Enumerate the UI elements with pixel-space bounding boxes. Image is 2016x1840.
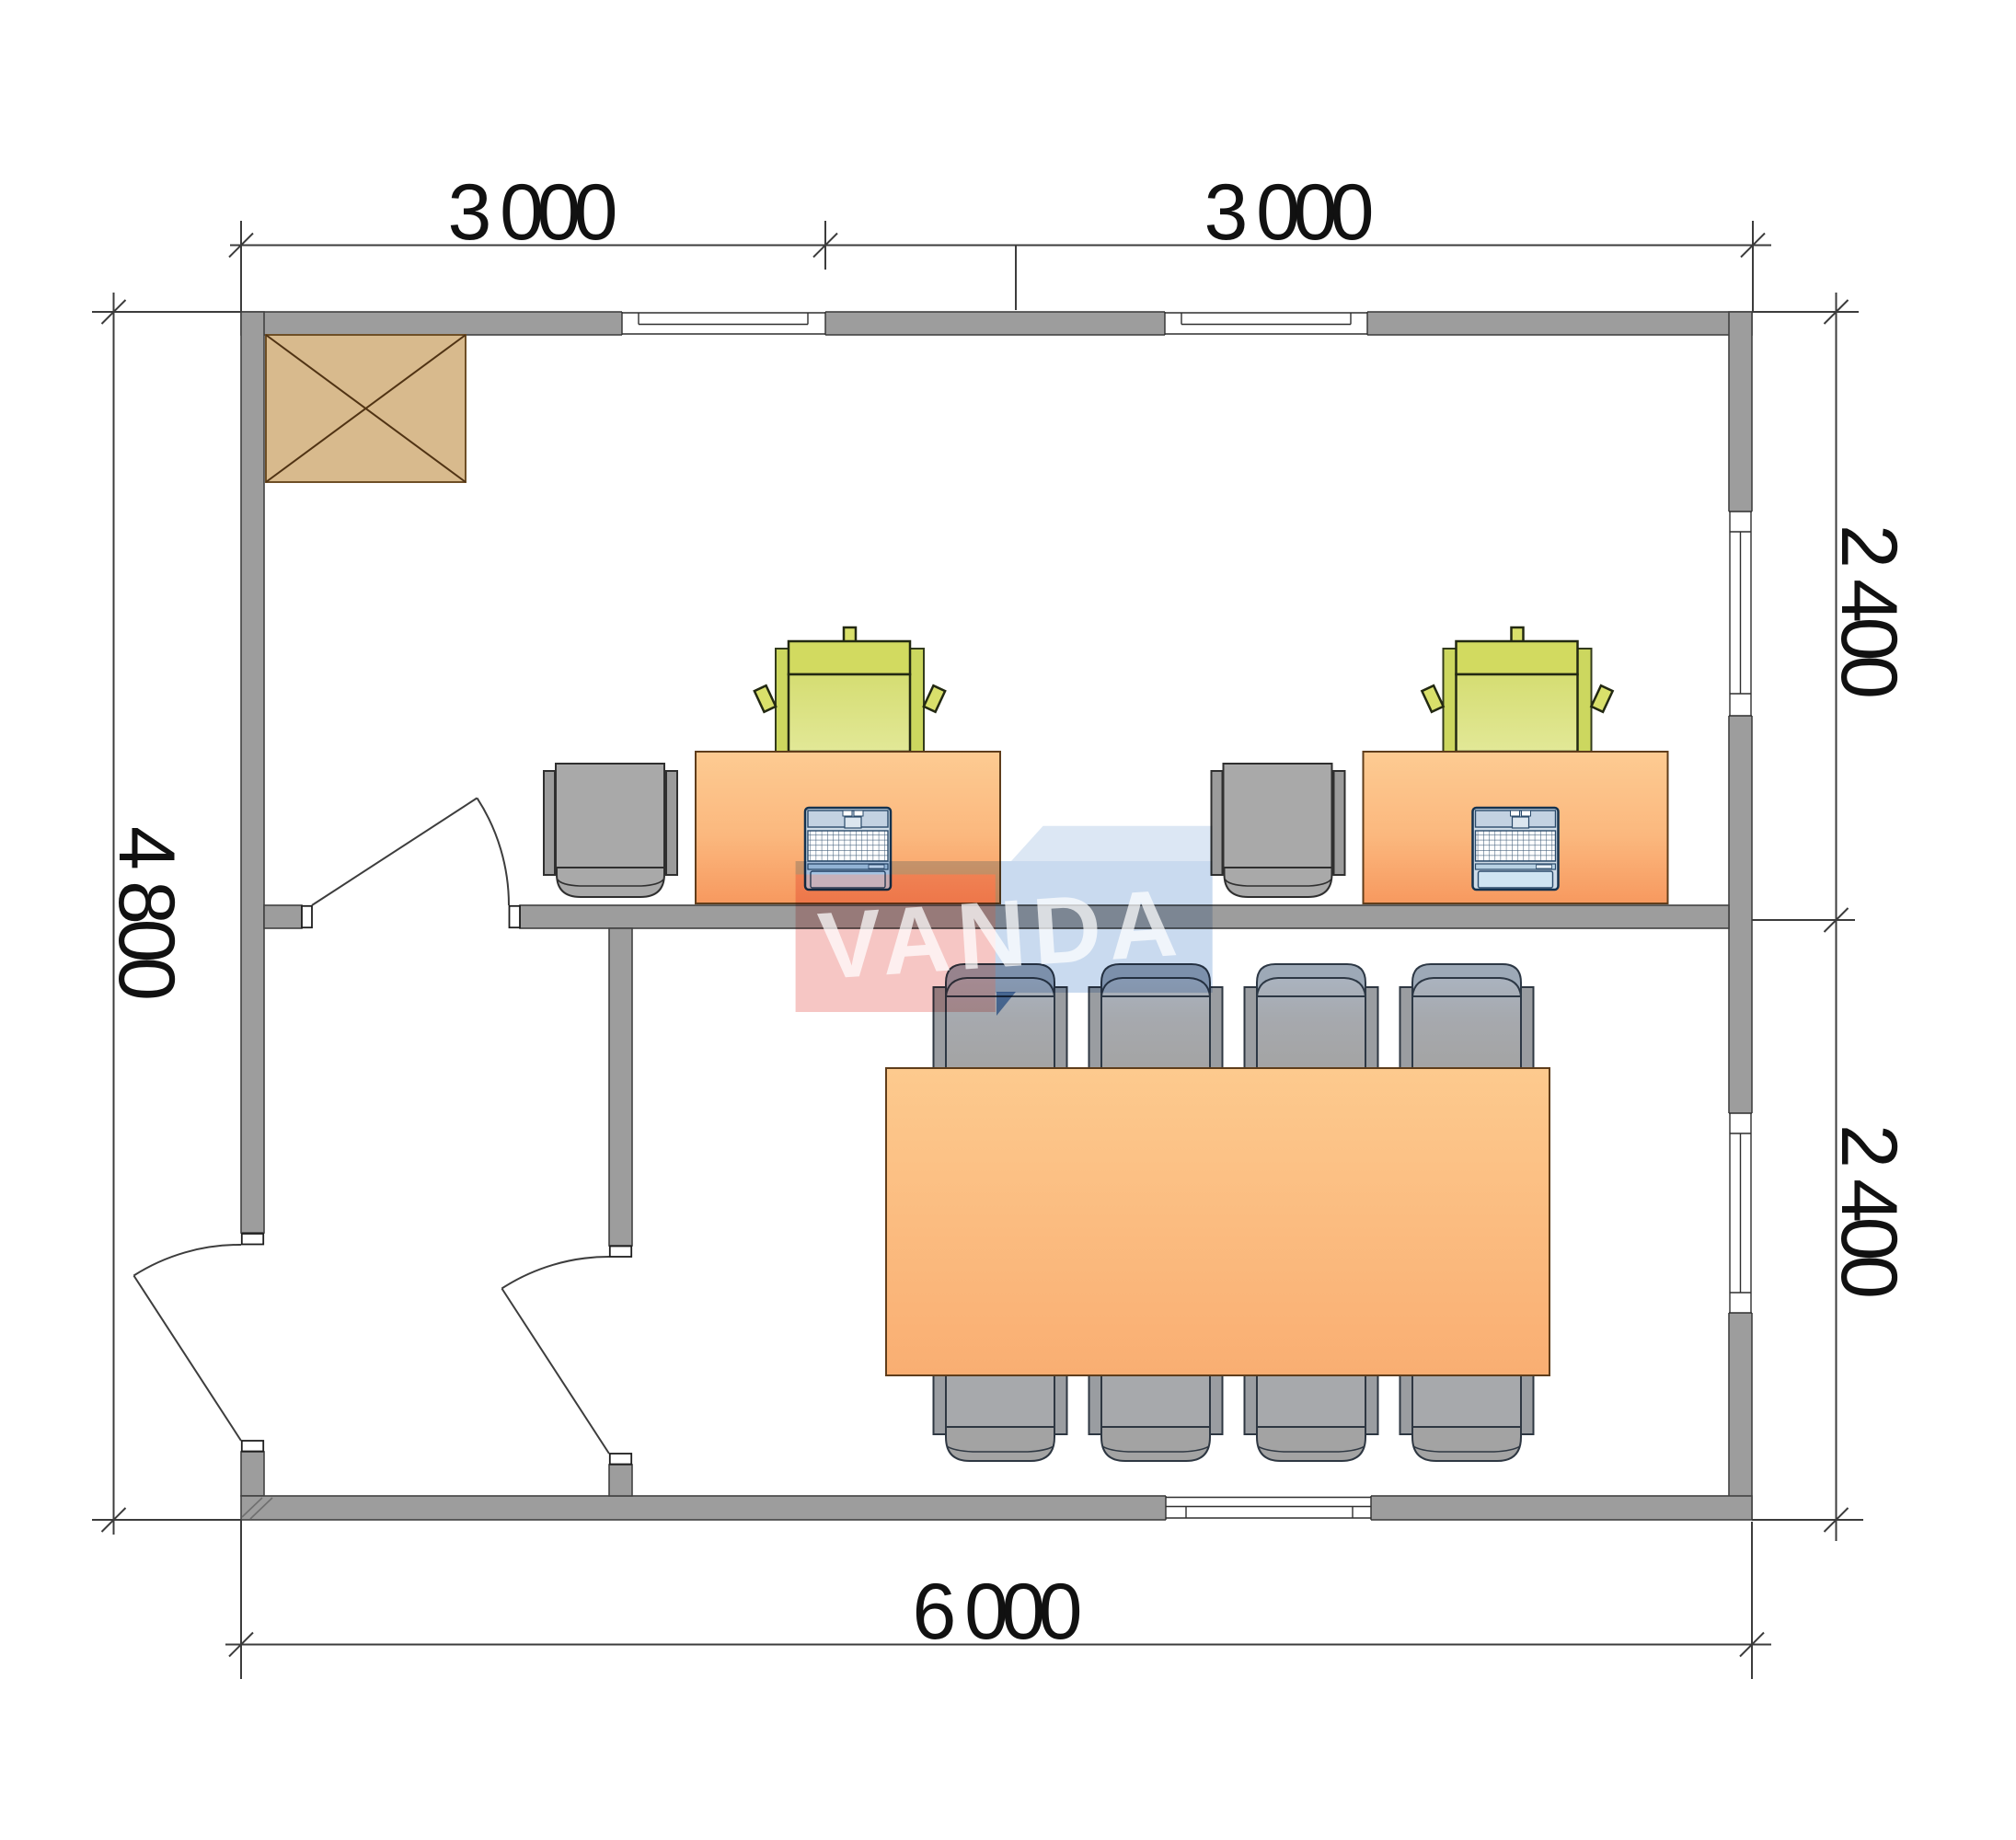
svg-text:2 400: 2 400 (1825, 524, 1913, 699)
svg-text:6 000: 6 000 (913, 1568, 1083, 1656)
svg-text:2 400: 2 400 (1825, 1124, 1913, 1299)
svg-text:3 000: 3 000 (1204, 168, 1375, 257)
svg-text:3 000: 3 000 (448, 168, 618, 257)
svg-text:4 800: 4 800 (102, 826, 190, 1001)
